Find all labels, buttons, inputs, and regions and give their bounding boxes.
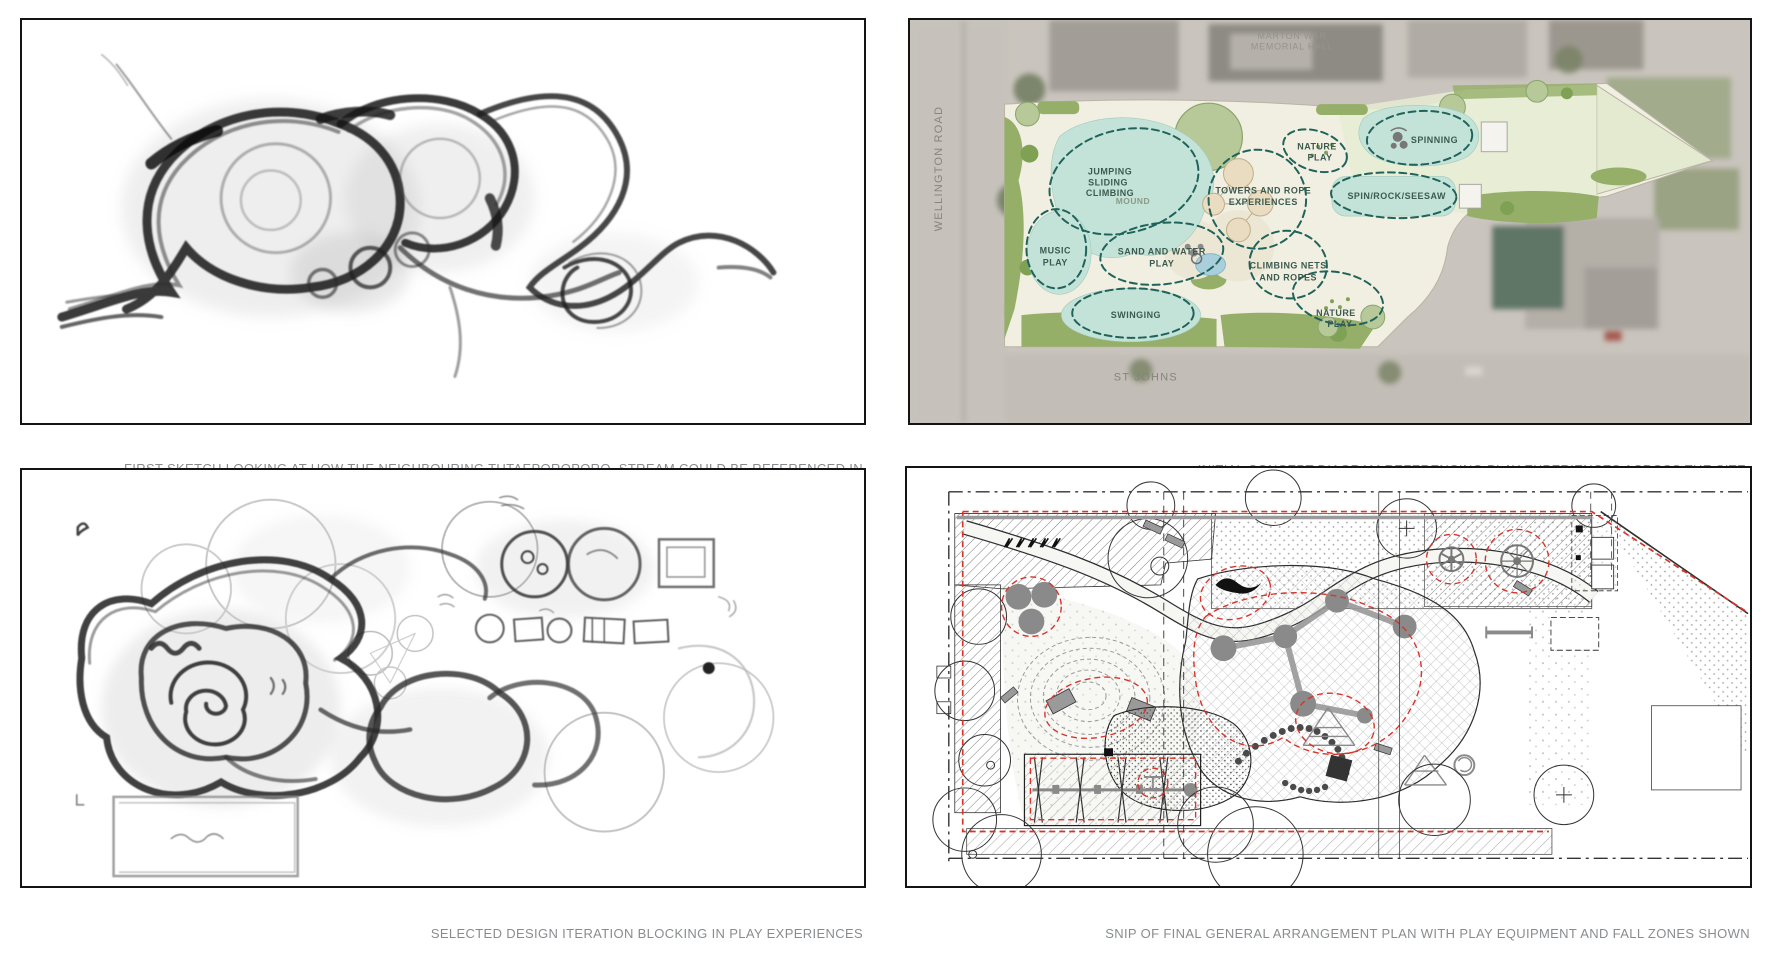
svg-text:MEMORIAL HALL: MEMORIAL HALL	[1251, 42, 1334, 52]
stream-sketch-drawing	[22, 20, 864, 423]
building-pad-top	[1481, 122, 1507, 152]
caption-final-plan: SNIP OF FINAL GENERAL ARRANGEMENT PLAN W…	[905, 895, 1750, 957]
label-wellington-road: WELLINGTON ROAD	[933, 106, 945, 231]
label-mound: MOUND	[1116, 196, 1150, 206]
iteration-sketch-drawing	[22, 470, 864, 886]
panel-first-sketch	[20, 18, 866, 425]
building-pad-right	[1459, 184, 1481, 208]
svg-text:PLAY: PLAY	[1149, 259, 1174, 269]
swing-bay	[1024, 748, 1200, 825]
label-nature-lower: NATURE	[1316, 308, 1356, 318]
label-st-johns: ST JOHNS	[1114, 371, 1178, 383]
water-pond	[1196, 254, 1226, 276]
label-nets: CLIMBING NETS	[1250, 261, 1327, 271]
panel-final-plan	[905, 466, 1752, 888]
concept-diagram-drawing: JUMPING SLIDING CLIMBING MOUND MUSIC PLA…	[910, 20, 1750, 423]
svg-text:PLAY: PLAY	[1308, 153, 1333, 163]
label-spinning: SPINNING	[1411, 135, 1458, 145]
label-sand: SAND AND WATER	[1118, 247, 1206, 257]
presentation-page: { "theme": { "page-bg": "#ffffff", "pane…	[0, 0, 1769, 925]
label-music: MUSIC	[1040, 246, 1071, 256]
svg-text:PLAY: PLAY	[1327, 319, 1352, 329]
label-nature-upper: NATURE	[1297, 142, 1337, 152]
caption-design-iteration: SELECTED DESIGN ITERATION BLOCKING IN PL…	[20, 895, 863, 957]
svg-text:PLAY: PLAY	[1043, 258, 1068, 268]
label-hall: MARTON WAR	[1257, 31, 1326, 41]
svg-text:EXPERIENCES: EXPERIENCES	[1229, 197, 1298, 207]
svg-text:AND ROPES: AND ROPES	[1259, 272, 1317, 282]
panel-design-iteration	[20, 468, 866, 888]
ga-plan-drawing	[907, 468, 1750, 886]
panel-concept-diagram: JUMPING SLIDING CLIMBING MOUND MUSIC PLA…	[908, 18, 1752, 425]
label-towers: TOWERS AND ROPE	[1215, 185, 1311, 195]
label-spinrock: SPIN/ROCK/SEESAW	[1347, 191, 1446, 201]
svg-text:SLIDING: SLIDING	[1088, 177, 1128, 187]
label-jumping: JUMPING	[1088, 166, 1132, 176]
label-swinging: SWINGING	[1111, 310, 1161, 320]
